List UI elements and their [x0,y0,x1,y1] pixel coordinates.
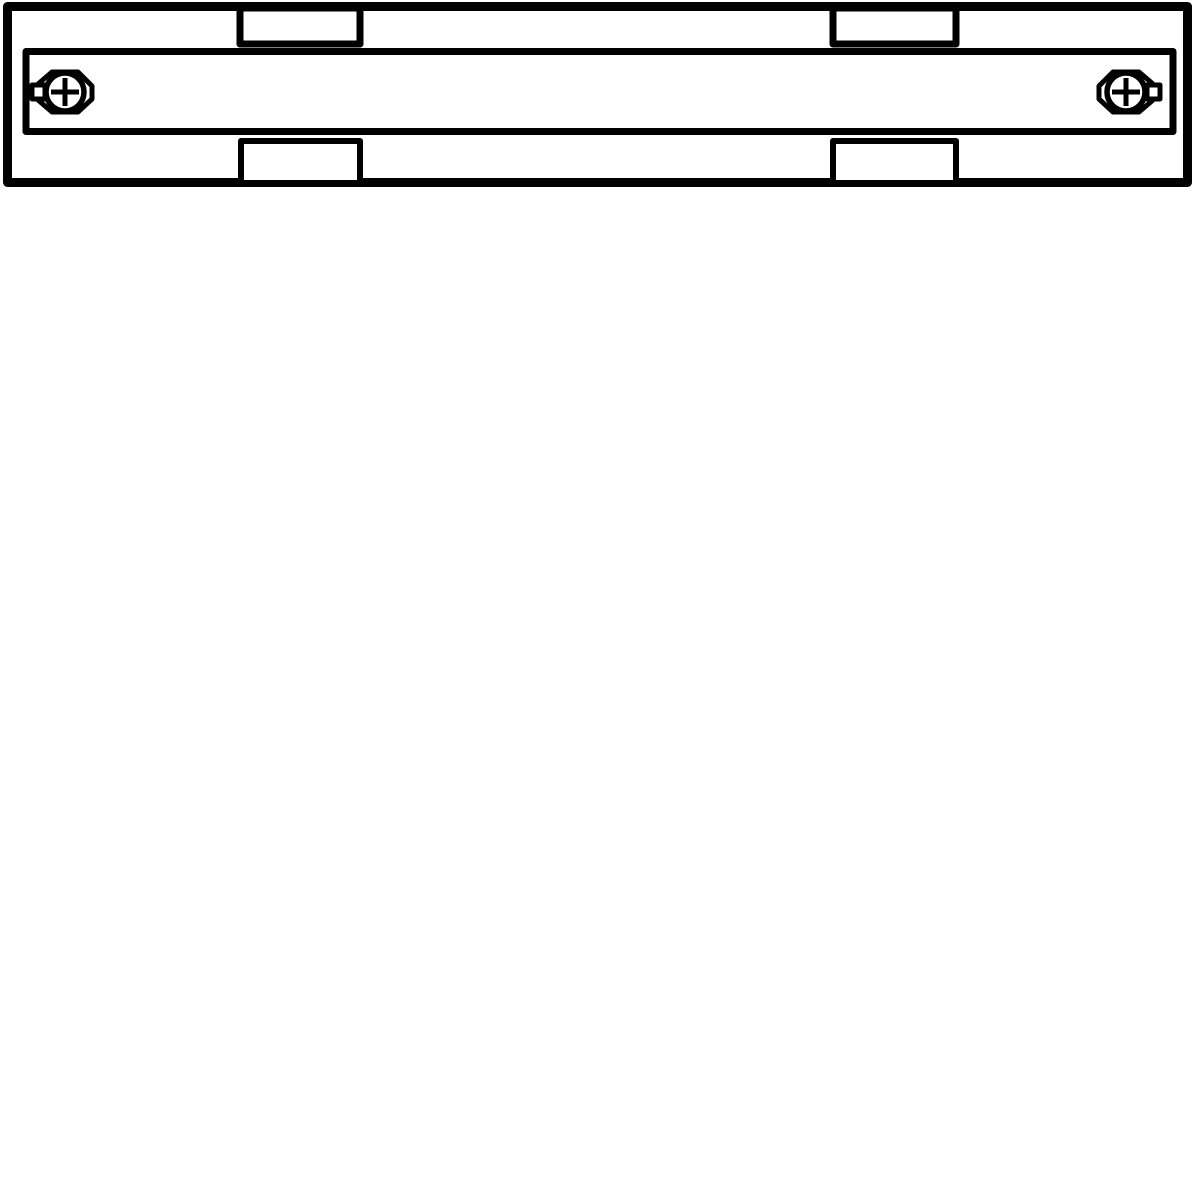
track-connector-technical-drawing [0,0,1200,1200]
blank-canvas [0,0,1200,1200]
bottom-right-tab [833,141,956,183]
top-right-tab [833,8,956,44]
top-left-tab [240,8,360,44]
left-screw-clamp-plate [32,85,45,99]
rail-body [26,52,1173,132]
right-screw-clamp-plate [1147,85,1160,99]
bottom-left-tab [241,141,360,183]
